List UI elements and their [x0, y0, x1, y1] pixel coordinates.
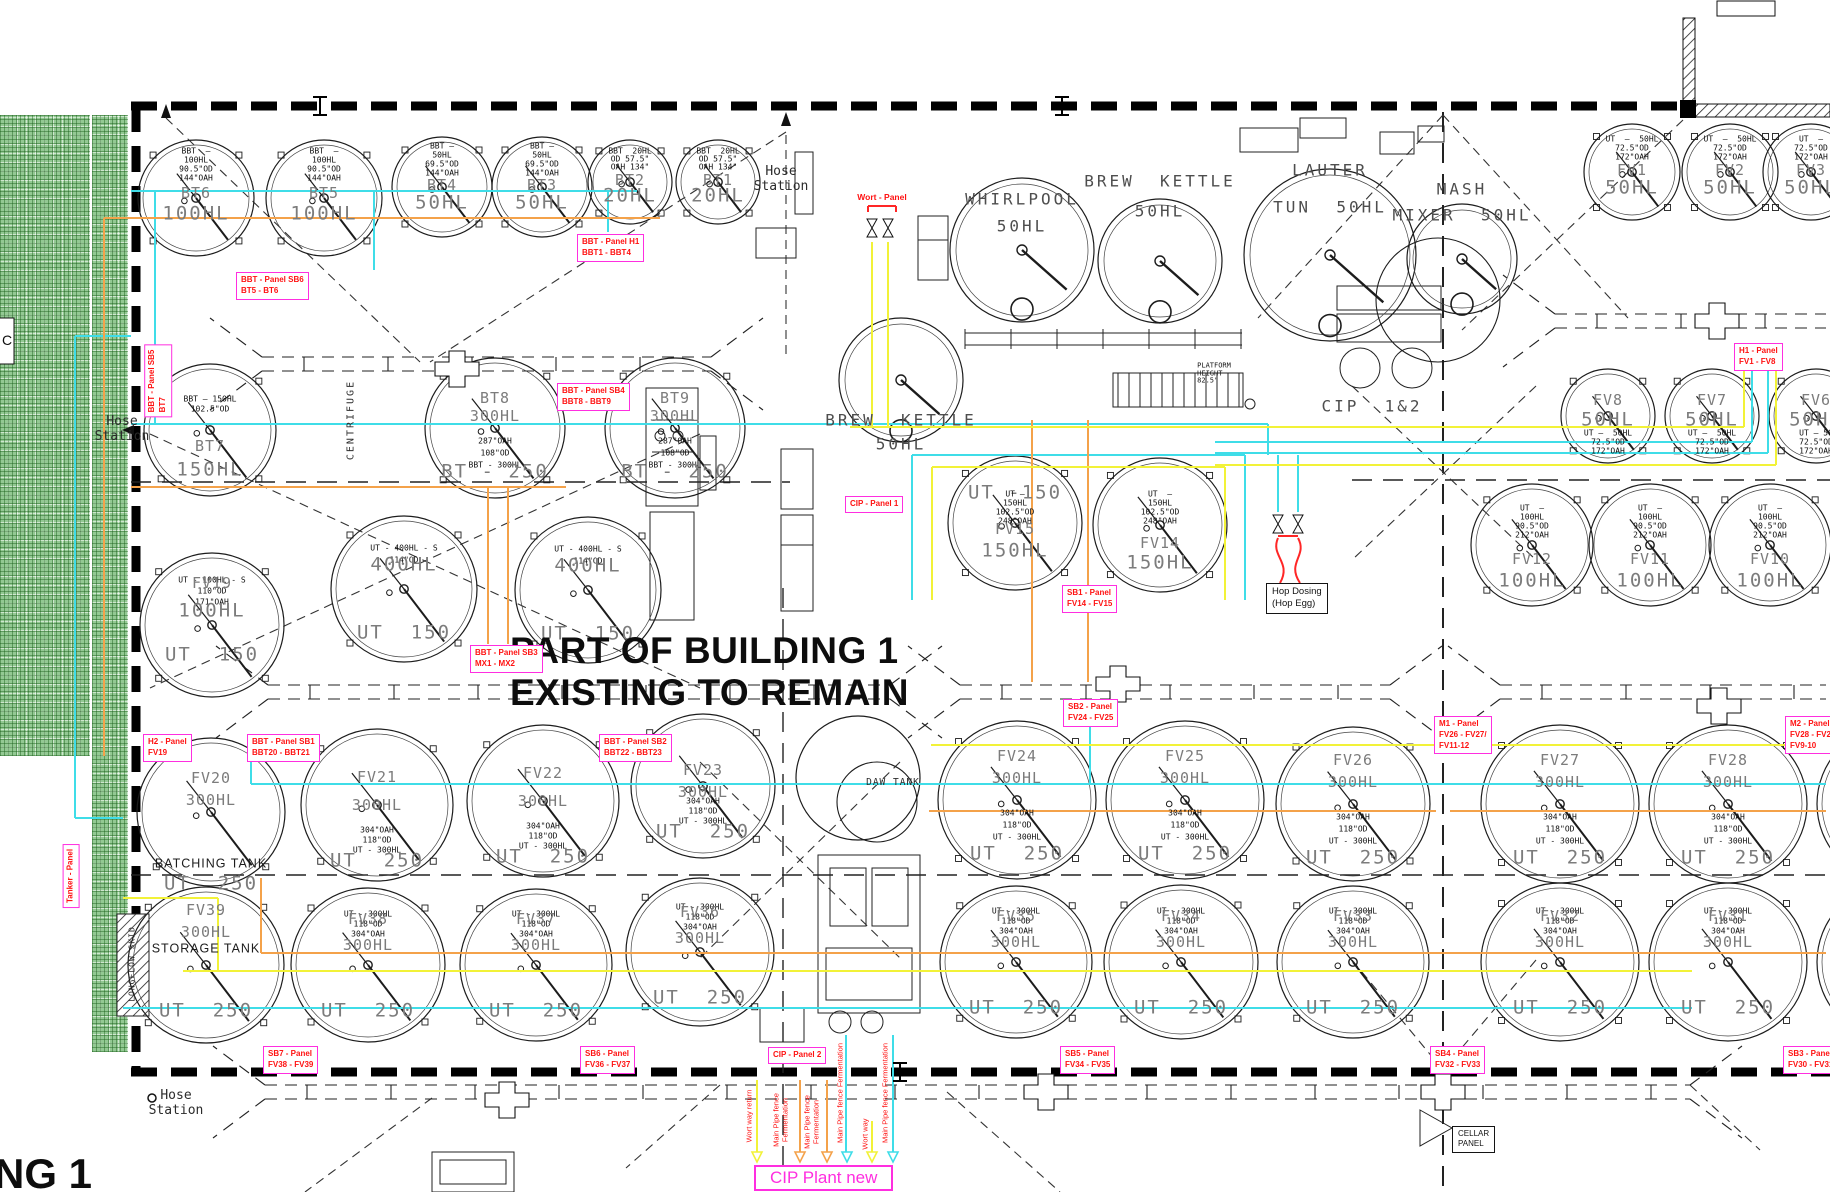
tank-BT4-text-5: 50HL [415, 193, 469, 214]
tank-FV19-text-5: UT 150 [165, 645, 259, 666]
tank-FV32-text-3: FV32 [1540, 908, 1580, 924]
equipment [872, 868, 908, 926]
tank-UT400B-text-0: UT - 400HL - S [554, 546, 621, 555]
panel-label-SB3: SB3 - PanelFV30 - FV31 [1783, 1046, 1830, 1074]
tank-FV34-text-5: UT 250 [1134, 998, 1228, 1019]
tank-FV20-text-1: 300HL [186, 792, 236, 808]
tank-FV37-text-3: FV37 [516, 911, 556, 927]
tank-FV27-text-3: 118"OD [1546, 826, 1575, 835]
vessel-brew-kettle-2-label-1: 50HL [876, 435, 927, 452]
daw-tank-label: DAW TANK [866, 778, 920, 788]
tank-FV24-text-4: UT - 300HL [993, 834, 1041, 843]
panel-label-SB6: SB6 - PanelFV36 - FV37 [580, 1046, 635, 1074]
tank-FV39-text-3: UT 250 [159, 1001, 253, 1022]
tank-BT5-text-4: BT5 [309, 185, 339, 201]
tank-FV8-text-4: 172"OAH [1591, 448, 1625, 457]
hop-dosing-hose-2 [1295, 538, 1301, 583]
tank-BT9-text-5: BT - 250 [621, 462, 729, 483]
tank-BT2-text-4: 20HL [603, 186, 657, 207]
tank-FV20-text-3: UT 250 [164, 874, 258, 895]
tank-FV8-text-1: 50HL [1581, 410, 1635, 431]
tank-FV11-text-3: 212"OAH [1633, 532, 1667, 541]
wall-corner [1680, 100, 1696, 118]
tank-FV22-text-1: 300HL [518, 793, 568, 809]
tank-FV27-text-1: 300HL [1535, 774, 1585, 790]
tank-FV26-text-2: 304"OAH [1336, 814, 1370, 823]
tank-FV28-text-2: 304"OAH [1711, 814, 1745, 823]
panel-label-SB4: SB4 - PanelFV32 - FV33 [1430, 1046, 1485, 1074]
floor-plan-drawing: PART OF BUILDING 1 EXISTING TO REMAIN NG… [0, 0, 1830, 1192]
tank-FV11-text-4: FV11 [1630, 551, 1670, 567]
tank-FV10-text-5: 100HL [1736, 571, 1803, 592]
panel-label-CIP-1: CIP - Panel 1 [845, 496, 903, 513]
flow-arrow-wort-way-return [752, 1152, 762, 1162]
tank-FV19-text-3: FV19 [192, 575, 232, 591]
panel-label-CIP-2: CIP - Panel 2 [768, 1047, 826, 1064]
tank-FV22-text-2: 304"OAH [526, 823, 560, 832]
equipment [1380, 132, 1414, 154]
construction-line-10 [305, 1098, 432, 1192]
tank-BT7-text-0: BBT – 150HL [184, 396, 237, 405]
label-hop-dosing: Hop Dosing(Hop Egg) [1266, 583, 1328, 614]
tank-FV7-text-4: 172"OAH [1695, 448, 1729, 457]
flow-arrow-wort-way [867, 1152, 877, 1162]
tank-BT8-text-1: 300HL [470, 408, 520, 424]
tank-FV24-text-2: 304"OAH [1000, 810, 1034, 819]
tank-FV14-text-3: 248"OAH [1143, 518, 1177, 527]
tank-FV7-text-0: FV7 [1697, 392, 1727, 408]
tank-FV2-text-3: FV2 [1715, 162, 1745, 178]
tank-FV35-text-4: 300HL [991, 934, 1041, 950]
tank-BT8-text-3: 108"OD [481, 450, 510, 459]
tank-FV24-text-5: UT 250 [970, 844, 1064, 865]
tank-BT6-text-3: 144"OAH [179, 175, 213, 184]
tank-FV21-text-1: 300HL [352, 797, 402, 813]
arrow-icon [161, 104, 171, 118]
panel-label-M1: M1 - PanelFV26 - FV27/FV11-12 [1434, 716, 1492, 754]
tank-FV3-text-3: FV3 [1796, 162, 1826, 178]
tank-FV28-text-5: UT 250 [1681, 848, 1775, 869]
tank-FV24-text-0: FV24 [997, 748, 1037, 764]
vessel-mash-mixer-label-0: MASH [1437, 180, 1488, 197]
tank-FV23-text-2: 304"OAH [686, 798, 720, 807]
corridor-junction [1024, 1074, 1068, 1110]
vessel-whirlpool-label-1: 50HL [997, 217, 1048, 234]
tank-FV26-text-5: UT 250 [1306, 848, 1400, 869]
equipment [1300, 118, 1346, 138]
tank-FV28-text-1: 300HL [1703, 774, 1753, 790]
centrifuge-label: CENTRIFUGE [347, 380, 358, 460]
tank-FV38-text-4: 300HL [343, 937, 393, 953]
vessel-mash-mixer-label-1: MIXER 50HL [1393, 206, 1532, 223]
cip-1and2-label: CIP 1&2 [1321, 397, 1422, 414]
panel-label-BBT-SB3: BBT - Panel SB3MX1 - MX2 [470, 645, 543, 673]
tank-FV36-text-5: UT 250 [653, 988, 747, 1009]
tank-BT3-text-4: BT3 [527, 177, 557, 193]
arrow-icon [781, 112, 791, 126]
tank-FV26-text-3: 118"OD [1339, 826, 1368, 835]
tank-FV34-text-4: 300HL [1156, 934, 1206, 950]
tank-FV3-text-4: 50HL [1784, 178, 1830, 199]
panel-label-SB1: SB1 - PanelFV14 - FV15 [1062, 585, 1117, 613]
tank-FV1-text-4: 50HL [1605, 178, 1659, 199]
tank-FV14-text-5: 150HL [1126, 553, 1193, 574]
tank-FV12-text-3: 212"OAH [1515, 532, 1549, 541]
flow-arrow-main-pipe-fence-ferm-3 [842, 1152, 852, 1162]
vessel-mash-mixer [1376, 204, 1517, 362]
tank-FV22-text-5: UT 250 [496, 847, 590, 868]
tank-FV21-text-3: 118"OD [363, 837, 392, 846]
tank-FV36-text-3: FV36 [680, 904, 720, 920]
tank-FV26-text-4: UT - 300HL [1329, 838, 1377, 847]
page-title-line1: PART OF BUILDING 1 [510, 630, 899, 672]
tank-FV26-text-0: FV26 [1333, 752, 1373, 768]
equipment [1337, 286, 1441, 310]
flow-label-main-pipe-fence-ferm-4: Main Pipe fence Fermentation [880, 1043, 889, 1143]
tank-FV25-text-1: 300HL [1160, 770, 1210, 786]
tank-FV31-text-4: 300HL [1703, 934, 1753, 950]
vessel-brew-kettle-2-label-0: BREW KETTLE [825, 411, 977, 428]
tank-FV35-text-3: FV35 [996, 908, 1036, 924]
flow-arrow-main-pipe-fence-ferm-4 [888, 1152, 898, 1162]
corridor-junction [1096, 666, 1140, 702]
panel-label-BBT-SB2: BBT - Panel SB2BBT22 - BBT23 [599, 734, 672, 762]
longflow-skid-label: LONGFLOW SKID [129, 926, 138, 1002]
corridor-junction [485, 1082, 529, 1118]
tank-FV25-text-3: 118"OD [1171, 822, 1200, 831]
tank-FV32-text-4: 300HL [1535, 934, 1585, 950]
panel-label-BBT-H1: BBT - Panel H1BBT1 - BBT4 [577, 234, 644, 262]
tank-FV38-text-5: UT 250 [321, 1001, 415, 1022]
tank-BT4-text-4: BT4 [427, 177, 457, 193]
vessel-whirlpool-label-0: WHIRLPOOL [965, 190, 1079, 207]
equipment [918, 216, 948, 280]
tank-BT1-text-4: 20HL [691, 186, 745, 207]
vessel-brew-kettle-1-label-0: BREW KETTLE [1084, 172, 1236, 189]
panel-label-H1: H1 - PanelFV1 - FV8 [1734, 343, 1783, 371]
tank-FV38-text-3: FV38 [348, 911, 388, 927]
tank-FV34-text-3: FV34 [1161, 908, 1201, 924]
tank-FV39-text-1: 300HL [181, 924, 231, 940]
tank-FV11-text-5: 100HL [1616, 571, 1683, 592]
tank-FV25-text-0: FV25 [1165, 748, 1205, 764]
vessel-lauter-tun [1244, 169, 1416, 341]
tank-FV23-text-5: UT 250 [656, 822, 750, 843]
construction-line-8 [626, 1085, 720, 1168]
tank-FV8-text-0: FV8 [1593, 392, 1623, 408]
tank-FV21-text-5: UT 250 [330, 851, 424, 872]
panel-label-BBT-SB4: BBT - Panel SB4BBT8 - BBT9 [557, 383, 630, 411]
equipment [760, 1008, 804, 1042]
tank-FV6-text-1: 50HL [1789, 410, 1830, 431]
construction-line-11 [1690, 1085, 1760, 1150]
panel-label-BBT-SB1: BBT - Panel SB1BBT20 - BBT21 [247, 734, 320, 762]
tank-FV12-text-5: 100HL [1498, 571, 1565, 592]
hop-dosing-hose-1 [1276, 538, 1283, 583]
tank-FV27-text-4: UT - 300HL [1536, 838, 1584, 847]
tank-BT8-text-5: BT - 250 [441, 462, 549, 483]
panel-label-SB2: SB2 - PanelFV24 - FV25 [1063, 699, 1118, 727]
construction-line-14 [1462, 120, 1683, 330]
equipment [830, 868, 866, 926]
hopper-box [1717, 1, 1775, 16]
flow-label-wort-way-return: Wort way return [744, 1090, 753, 1143]
tank-FV22-text-0: FV22 [523, 765, 563, 781]
tank-FV33-text-3: FV33 [1333, 908, 1373, 924]
equipment [432, 1152, 514, 1192]
tank-BT9-text-2: 287"OAH [658, 438, 692, 447]
tank-FV31-text-5: UT 250 [1681, 998, 1775, 1019]
hose-station-left: Hose Station [95, 415, 150, 445]
tank-FV25-text-4: UT - 300HL [1161, 834, 1209, 843]
flow-arrow-main-pipe-fence-ferm-1 [795, 1152, 805, 1162]
label-cellar-panel: CELLARPANEL [1452, 1126, 1495, 1153]
tank-BT7-text-3: 150HL [176, 460, 243, 481]
building-ref-text: NG 1 [0, 1150, 92, 1192]
valve-icon [1273, 524, 1283, 533]
corridor-junction [1421, 1074, 1465, 1110]
tank-UT400A-text-2: 400HL [370, 555, 437, 576]
tank-BT3-text-5: 50HL [515, 193, 569, 214]
valve-icon [883, 219, 893, 228]
tank-BT7-text-1: 102.5"OD [191, 406, 230, 415]
panel-label-H2: H2 - PanelFV19 [143, 734, 192, 762]
wall-hatched-horizontal [1695, 104, 1830, 117]
platform-height: PLATFORM HEIGHT 82.5" [1197, 362, 1231, 385]
panel-label-BBT-SB5: BBT - Panel SB5BT7 [144, 345, 172, 418]
tank-FV23-text-0: FV23 [683, 762, 723, 778]
tank-FV39-text-2: STORAGE TANK [152, 942, 261, 956]
flow-label-main-pipe-fence-ferm-3: Main Pipe fence Fermentation [835, 1043, 844, 1143]
tank-UT400A-text-3: UT 150 [357, 623, 451, 644]
tank-BT6-text-4: BT6 [181, 185, 211, 201]
equipment [781, 515, 813, 611]
tank-FV33-text-4: 300HL [1328, 934, 1378, 950]
tank-FV27-text-0: FV27 [1540, 752, 1580, 768]
tank-FV30 [1817, 883, 1830, 1041]
panel-label-Tanker: Tanker - Panel [63, 844, 80, 908]
equipment [756, 228, 796, 258]
tank-FV26-text-1: 300HL [1328, 774, 1378, 790]
valve-icon [867, 228, 877, 237]
tank-FV22-text-3: 118"OD [529, 833, 558, 842]
tank-FV2-text-4: 50HL [1703, 178, 1757, 199]
tank-FV37-text-4: 300HL [511, 937, 561, 953]
tank-BT8-text-2: 287"OAH [478, 438, 512, 447]
tank-FV12-text-4: FV12 [1512, 551, 1552, 567]
corridor-junction [1695, 303, 1739, 339]
tank-FV24-text-1: 300HL [992, 770, 1042, 786]
vessel-lauter-tun-label-1: TUN 50HL [1273, 198, 1387, 215]
tank-FV25-text-5: UT 250 [1138, 844, 1232, 865]
tank-FV28-text-4: UT - 300HL [1704, 838, 1752, 847]
equipment [1240, 128, 1298, 152]
tank-UT400B-text-2: 400HL [554, 556, 621, 577]
panel-label-SB5: SB5 - PanelFV34 - FV35 [1060, 1046, 1115, 1074]
cip-plant-new-label: CIP Plant new [754, 1165, 893, 1191]
tank-BT9-text-1: 300HL [650, 408, 700, 424]
equipment [440, 1160, 506, 1184]
tank-FV32-text-5: UT 250 [1513, 998, 1607, 1019]
cellar-flag [1420, 1110, 1452, 1146]
tank-FV24-text-3: 118"OD [1003, 822, 1032, 831]
valve-icon [1293, 524, 1303, 533]
tank-BT9-text-0: BT9 [660, 390, 690, 406]
tank-FV31-text-3: FV31 [1708, 908, 1748, 924]
panel-label-BBT-SB6: BBT - Panel SB6BT5 - BT6 [236, 272, 309, 300]
hose-station-top: Hose Station [754, 165, 809, 195]
tank-FV33-text-5: UT 250 [1306, 998, 1400, 1019]
flow-label-wort-way: Wort way [860, 1118, 869, 1149]
tank-FV35-text-5: UT 250 [969, 998, 1063, 1019]
tank-FV1-text-3: FV1 [1617, 162, 1647, 178]
tank-FV10-text-4: FV10 [1750, 551, 1790, 567]
tank-FV36-text-4: 300HL [675, 930, 725, 946]
valve-icon [1273, 515, 1283, 524]
tank-FV6-text-4: 172"OAH [1799, 448, 1830, 457]
tank-FV37-text-5: UT 250 [489, 1001, 583, 1022]
equipment [826, 948, 912, 1000]
flow-arrow-main-pipe-fence-ferm-2 [822, 1152, 832, 1162]
tank-FV6-text-0: FV6 [1801, 392, 1830, 408]
flow-label-main-pipe-fence-ferm-2: Main Pipe fence Fermentation [803, 1095, 822, 1149]
tank-UT400A-text-0: UT - 400HL - S [370, 545, 437, 554]
tank-FV28-text-3: 118"OD [1714, 826, 1743, 835]
tank-FV27-text-5: UT 250 [1513, 848, 1607, 869]
valve-icon [883, 228, 893, 237]
tank-FV21-text-0: FV21 [357, 769, 397, 785]
grid-letter: C [2, 332, 12, 348]
page-title-line2: EXISTING TO REMAIN [510, 672, 909, 714]
tank-BT5-text-3: 144"OAH [307, 175, 341, 184]
tank-FV15-text-6: 150HL [981, 541, 1048, 562]
corridor-junction [435, 351, 479, 387]
tank-FV20-text-2: BATCHING TANK [155, 857, 267, 871]
panel-label-M2: M2 - PanelFV28 - FV29/FV9-10 [1785, 716, 1830, 754]
tank-FV21-text-2: 304"OAH [360, 827, 394, 836]
tank-FV19-text-4: 100HL [178, 601, 245, 622]
valve-icon [867, 219, 877, 228]
tank-FV20-text-0: FV20 [191, 770, 231, 786]
vessel-lauter-tun-label-0: LAUTER [1292, 161, 1368, 178]
tank-FV25-text-2: 304"OAH [1168, 810, 1202, 819]
tank-BT9-text-3: 108"OD [661, 450, 690, 459]
tank-BT5-text-5: 100HL [290, 204, 357, 225]
construction-line-13 [700, 762, 900, 958]
wall-hatched-vertical [1683, 18, 1695, 106]
tank-FV28-text-0: FV28 [1708, 752, 1748, 768]
tank-FV23-text-3: 118"OD [689, 808, 718, 817]
tank-BT6-text-5: 100HL [162, 204, 229, 225]
panel-label-SB7: SB7 - PanelFV38 - FV39 [263, 1046, 318, 1074]
equipment [818, 855, 920, 1013]
tank-FV27-text-2: 304"OAH [1543, 814, 1577, 823]
tank-FV15-text-5: FV15 [995, 521, 1035, 537]
corridor-junction [1697, 688, 1741, 724]
hose-station-bottom: Hose Station [149, 1089, 204, 1119]
wort-panel-label: Wort - Panel [857, 192, 906, 202]
tank-FV39-text-0: FV39 [186, 902, 226, 918]
tank-FV10-text-3: 212"OAH [1753, 532, 1787, 541]
tank-FV14-text-4: FV14 [1140, 535, 1180, 551]
flow-label-main-pipe-fence-ferm-1: Main Pipe fence Fermentation [772, 1093, 791, 1147]
vessel-brew-kettle-1-label-1: 50HL [1135, 202, 1186, 219]
tank-BT8-text-0: BT8 [480, 390, 510, 406]
tank-FV7-text-1: 50HL [1685, 410, 1739, 431]
tank-BT7-text-2: BT7 [195, 438, 225, 454]
valve-icon [1293, 515, 1303, 524]
equipment [781, 449, 813, 509]
